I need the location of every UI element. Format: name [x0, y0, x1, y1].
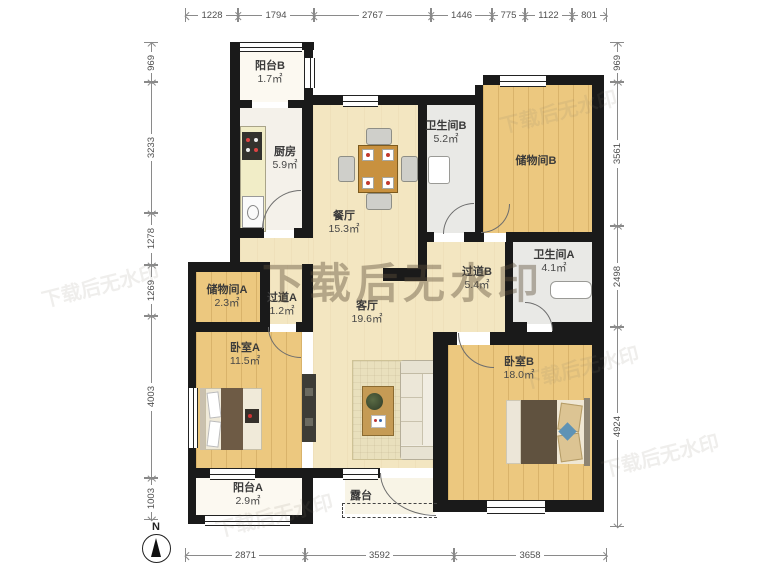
dimension-bottom-0: 2871	[185, 548, 306, 562]
kitchen-sink-icon	[242, 196, 264, 228]
chair	[366, 193, 392, 210]
bed-foot-bench	[506, 400, 521, 464]
bath-b-fixture	[428, 156, 450, 184]
room-label-living: 客厅 19.6㎡	[352, 300, 383, 326]
room-label-bedroom-b: 卧室B 18.0㎡	[504, 356, 535, 382]
dimension-left-1: 3233	[144, 81, 158, 214]
sofa-armrest	[401, 446, 434, 459]
dining-table-set	[338, 128, 416, 208]
tray	[371, 415, 386, 428]
room-name: 客厅	[352, 300, 383, 313]
dimension-right-2: 2498	[610, 225, 624, 328]
room-label-bath-b: 卫生间B 5.2㎡	[426, 120, 467, 146]
room-label-kitchen: 厨房 5.9㎡	[272, 146, 297, 172]
room-label-bedroom-a: 卧室A 11.5㎡	[230, 342, 260, 368]
dimension-bottom-2: 3658	[453, 548, 607, 562]
room-area: 2.3㎡	[207, 297, 248, 310]
wall	[505, 322, 527, 332]
dimension-right-3: 4924	[610, 326, 624, 527]
room-name: 卧室B	[504, 356, 535, 369]
stove-icon	[242, 132, 262, 160]
wall	[302, 105, 313, 238]
dimension-bottom-1: 3592	[304, 548, 455, 562]
wall	[383, 268, 427, 281]
window	[210, 468, 255, 480]
chair	[366, 128, 392, 145]
wall	[188, 262, 270, 272]
compass: N	[128, 521, 184, 577]
room-label-balcony-a: 阳台A 2.9㎡	[233, 482, 263, 508]
sink-basin	[247, 205, 259, 220]
wall	[506, 232, 604, 242]
room-label-dining: 餐厅 15.3㎡	[329, 210, 360, 236]
compass-circle	[142, 534, 171, 563]
room-label-bath-a: 卫生间A 4.1㎡	[534, 249, 575, 275]
wall	[592, 75, 604, 512]
tv-mark	[305, 418, 313, 426]
wall	[306, 95, 483, 105]
chair	[401, 156, 418, 182]
room-name: 餐厅	[329, 210, 360, 223]
terrace-dashed-boundary	[342, 503, 437, 518]
room-label-storage-b: 储物间B	[516, 155, 557, 168]
room-name: 卧室A	[230, 342, 260, 355]
room-name: 阳台A	[233, 482, 263, 495]
room-label-hall-a: 过道A 1.2㎡	[267, 292, 297, 318]
room-name: 储物间A	[207, 284, 248, 297]
bed-headboard	[584, 398, 590, 466]
dimension-top-6: 801	[571, 8, 607, 22]
tv-mark	[305, 388, 313, 396]
bed-deco-dot	[248, 414, 252, 418]
dimension-top-0: 1228	[185, 8, 239, 22]
window	[500, 75, 546, 87]
room-label-balcony-b: 阳台B 1.7㎡	[255, 60, 285, 86]
north-label: N	[141, 521, 171, 533]
room-area: 18.0㎡	[504, 369, 535, 382]
room-name: 阳台B	[255, 60, 285, 73]
window	[343, 95, 378, 107]
room-label-terrace: 露台	[350, 490, 372, 503]
window	[205, 515, 290, 526]
tray-dots	[374, 419, 377, 422]
wall	[302, 264, 313, 332]
room-name: 储物间B	[516, 155, 557, 168]
sofa-armrest	[401, 361, 434, 374]
room-area: 2.9㎡	[233, 495, 263, 508]
dimension-left-4: 4003	[144, 315, 158, 479]
room-name: 过道B	[462, 266, 492, 279]
wall	[230, 42, 240, 264]
room-area: 5.9㎡	[272, 159, 297, 172]
dimension-left-3: 1269	[144, 264, 158, 317]
window	[343, 468, 378, 480]
dimension-right-1: 3561	[610, 81, 624, 227]
sofa	[400, 360, 436, 460]
room-area: 19.6㎡	[352, 313, 383, 326]
wall	[552, 322, 604, 332]
room-label-hall-b: 过道B 5.4㎡	[462, 266, 492, 292]
dimension-top-3: 1446	[430, 8, 493, 22]
chair	[338, 156, 355, 182]
dimension-top-5: 1122	[524, 8, 573, 22]
tv-cabinet	[302, 374, 316, 442]
wall	[188, 322, 268, 332]
room-area: 5.4㎡	[462, 279, 492, 292]
room-area: 11.5㎡	[230, 355, 260, 368]
dimension-top-2: 2767	[313, 8, 432, 22]
window	[240, 42, 302, 52]
room-label-storage-a: 储物间A 2.3㎡	[207, 284, 248, 310]
wall	[238, 100, 252, 108]
room-area: 1.7㎡	[255, 73, 285, 86]
room-area: 1.2㎡	[267, 305, 297, 318]
room-name: 过道A	[267, 292, 297, 305]
wall	[505, 242, 513, 322]
dimension-top-1: 1794	[237, 8, 315, 22]
sofa-cushions	[401, 374, 423, 445]
floor-dining-strip	[240, 238, 315, 265]
room-name: 厨房	[272, 146, 297, 159]
north-arrow-icon	[151, 538, 161, 557]
plate	[362, 149, 374, 161]
dimension-right-0: 969	[610, 42, 624, 83]
room-area: 5.2㎡	[426, 133, 467, 146]
plate	[362, 177, 374, 189]
window	[188, 388, 198, 448]
plant-icon	[366, 393, 383, 410]
window	[304, 58, 315, 88]
bed-blanket	[521, 400, 557, 464]
wall	[490, 332, 604, 345]
floor-plan: 阳台B 1.7㎡ 厨房 5.9㎡ 餐厅 15.3㎡ 卫生间B 5.2㎡ 储物间B…	[0, 0, 770, 580]
window	[487, 500, 545, 514]
dimension-left-2: 1278	[144, 212, 158, 266]
room-name: 露台	[350, 490, 372, 503]
plate	[382, 177, 394, 189]
dimension-left-5: 1003	[144, 477, 158, 520]
plate	[382, 149, 394, 161]
dimension-left-0: 969	[144, 42, 158, 83]
bath-a-sink	[550, 281, 592, 299]
room-area: 15.3㎡	[329, 223, 360, 236]
room-area: 4.1㎡	[534, 262, 575, 275]
room-name: 卫生间A	[534, 249, 575, 262]
burner-dots	[246, 138, 250, 142]
bed-a	[200, 388, 262, 450]
bed-blanket	[221, 388, 243, 450]
dimension-top-4: 775	[491, 8, 526, 22]
room-name: 卫生间B	[426, 120, 467, 133]
bed-b	[506, 400, 590, 464]
